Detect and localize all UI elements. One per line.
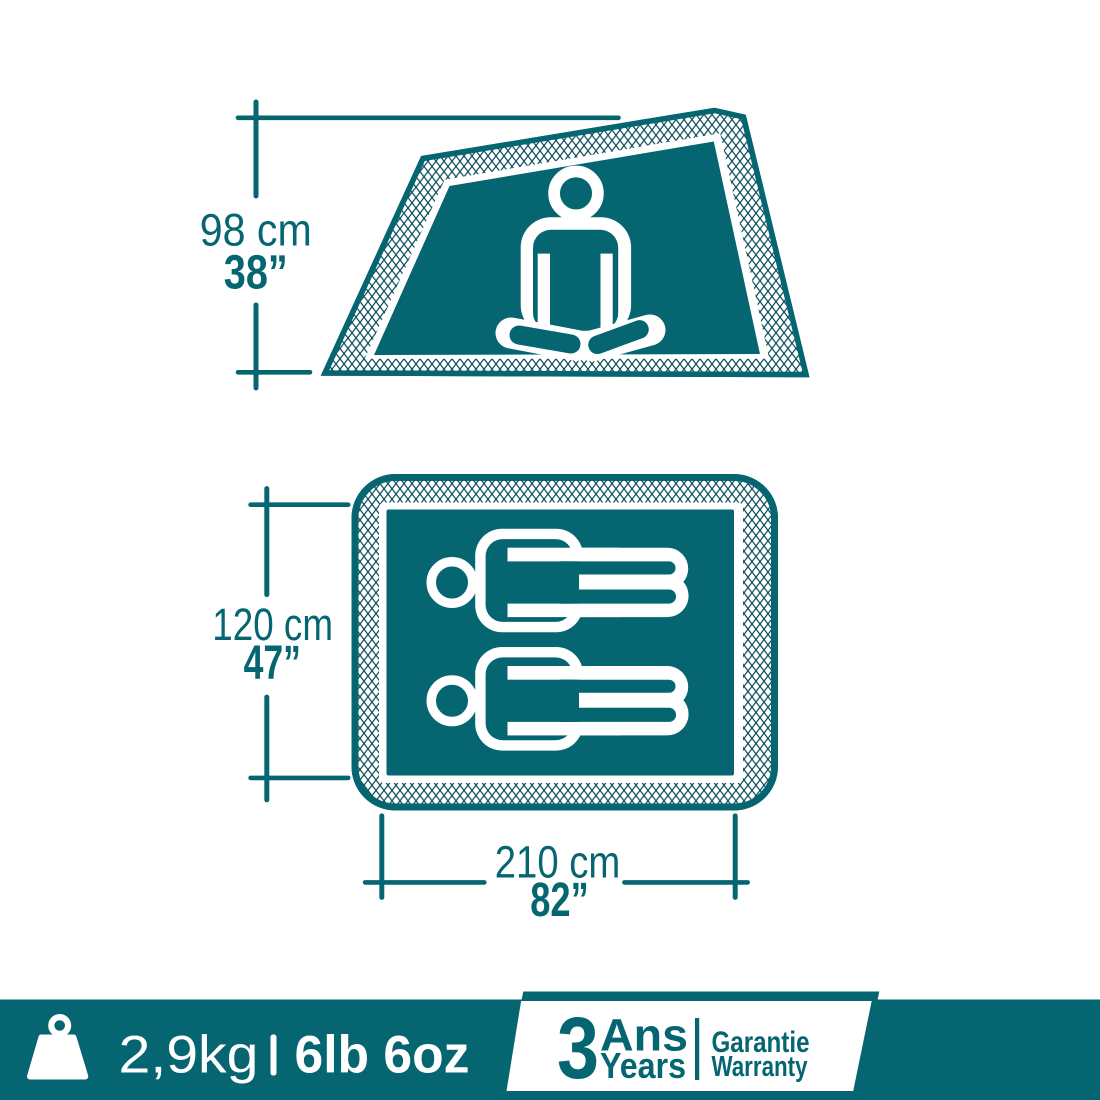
svg-text:38”: 38” bbox=[224, 246, 288, 299]
svg-text:6lb 6oz: 6lb 6oz bbox=[295, 1026, 470, 1085]
svg-text:Warranty: Warranty bbox=[712, 1051, 808, 1083]
svg-text:2,9kg: 2,9kg bbox=[119, 1026, 259, 1085]
svg-text:47”: 47” bbox=[244, 637, 301, 690]
svg-text:Years: Years bbox=[600, 1045, 686, 1086]
svg-text:82”: 82” bbox=[530, 874, 589, 927]
svg-text:3: 3 bbox=[557, 1000, 599, 1097]
